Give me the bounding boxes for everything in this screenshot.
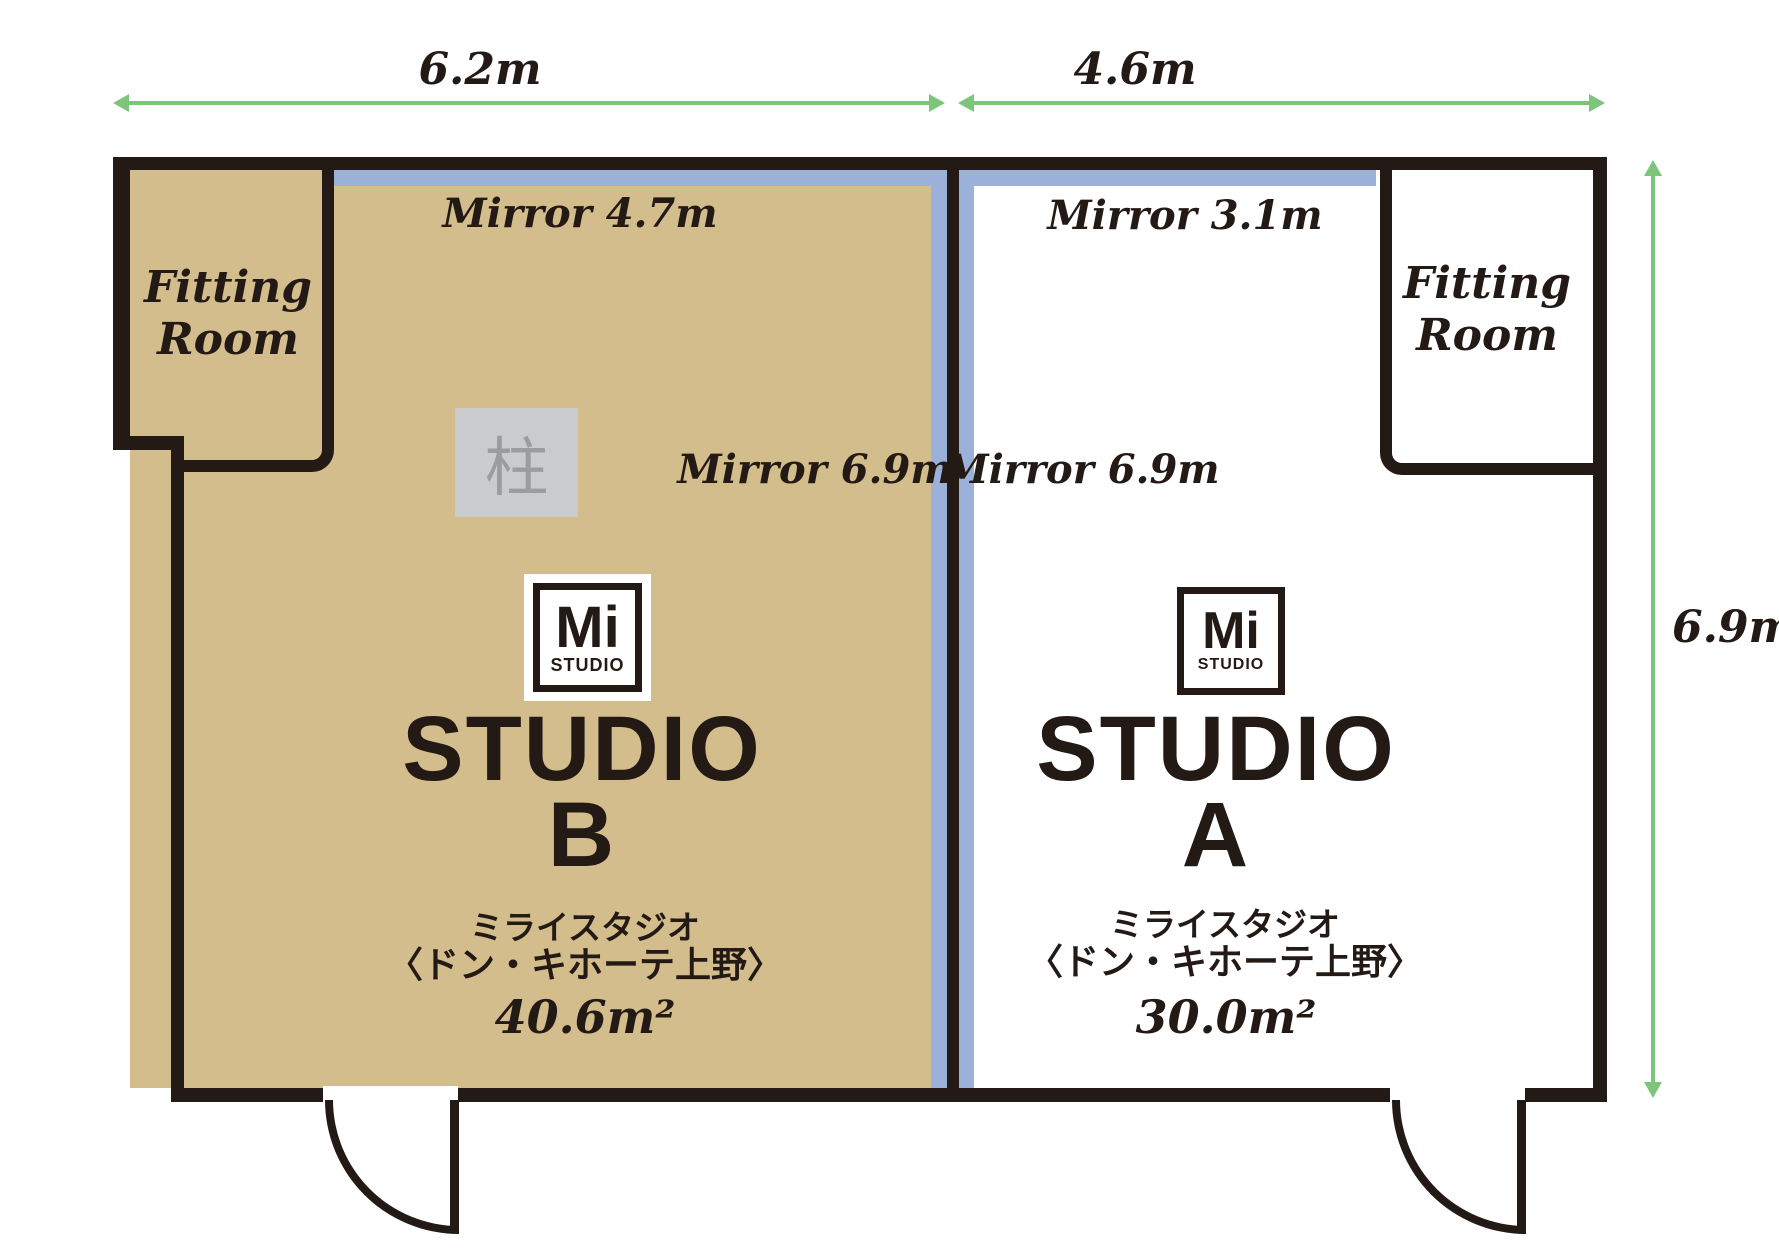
wall-left-step (113, 436, 171, 450)
fitting-room-b-label: Fitting Room (144, 262, 312, 366)
pillar-label: 柱 (485, 417, 549, 509)
studio-a-brand-logo: Mi STUDIO (1177, 587, 1285, 695)
logo-mi-text: Mi (1202, 607, 1260, 655)
dimension-arrow-top-left (118, 101, 942, 105)
fitting-room-b-line1: Fitting (144, 262, 312, 314)
fitting-room-a-line2: Room (1403, 310, 1571, 362)
logo-studio-text: STUDIO (1198, 655, 1264, 675)
studio-b-side-mirror-label: Mirror 6.9m (677, 446, 952, 493)
fitting-room-a-line1: Fitting (1403, 258, 1571, 310)
studio-a-title-line2: A (1036, 792, 1396, 878)
logo-studio-text: STUDIO (550, 655, 624, 675)
dimension-arrow-right (1651, 168, 1655, 1090)
studio-a-door-leaf (1517, 1100, 1526, 1230)
studio-a-title-line1: STUDIO (1036, 706, 1396, 792)
fitting-room-b-line2: Room (144, 314, 312, 366)
studio-a-subtitle-jp2: 〈ドン・キホーテ上野〉 (1027, 933, 1423, 985)
wall-right (1593, 157, 1607, 1102)
dimension-label-right: 6.9m (1672, 602, 1779, 653)
wall-center-divider (947, 170, 959, 1088)
dimension-label-top-left: 6.2m (418, 44, 541, 95)
arrowhead-left-icon (113, 94, 129, 112)
studio-b-door-leaf (450, 1100, 459, 1230)
studio-a-side-mirror (959, 170, 974, 1088)
studio-a-area-label: 30.0m² (1136, 990, 1317, 1044)
studio-a-side-mirror-label: Mirror 6.9m (944, 446, 1219, 493)
studio-b-top-mirror-label: Mirror 4.7m (442, 190, 717, 237)
dimension-arrow-top-right (963, 101, 1602, 105)
wall-top (113, 157, 1607, 170)
studio-a-top-mirror (974, 170, 1376, 186)
arrowhead-right-icon (929, 94, 945, 112)
fitting-room-a-label: Fitting Room (1403, 258, 1571, 362)
floor-plan: 6.2m 4.6m 6.9m Fitting Room Fitting Room… (0, 0, 1779, 1260)
studio-b-subtitle-jp2: 〈ドン・キホーテ上野〉 (387, 936, 783, 988)
studio-b-area-label: 40.6m² (495, 990, 676, 1044)
wall-left-lower (171, 436, 184, 1102)
studio-a-door-swing-arc (1392, 1100, 1526, 1234)
studio-b-title-line1: STUDIO (402, 706, 762, 792)
studio-a-title: STUDIO A (1036, 706, 1396, 878)
arrowhead-right-icon (1589, 94, 1605, 112)
studio-b-top-mirror (334, 170, 947, 186)
logo-mi-text: Mi (555, 601, 619, 655)
arrowhead-up-icon (1644, 160, 1662, 176)
studio-b-door-swing-arc (325, 1100, 459, 1234)
studio-a-top-mirror-label: Mirror 3.1m (1047, 192, 1322, 239)
studio-b-title: STUDIO B (402, 706, 762, 878)
arrowhead-down-icon (1644, 1082, 1662, 1098)
studio-b-title-line2: B (402, 792, 762, 878)
wall-left-upper (113, 157, 130, 450)
arrowhead-left-icon (958, 94, 974, 112)
studio-b-side-mirror (931, 170, 947, 1088)
studio-b-brand-logo: Mi STUDIO (524, 574, 651, 701)
pillar: 柱 (455, 408, 578, 517)
dimension-label-top-right: 4.6m (1073, 44, 1196, 95)
mi-studio-logo-icon: Mi STUDIO (533, 583, 642, 692)
